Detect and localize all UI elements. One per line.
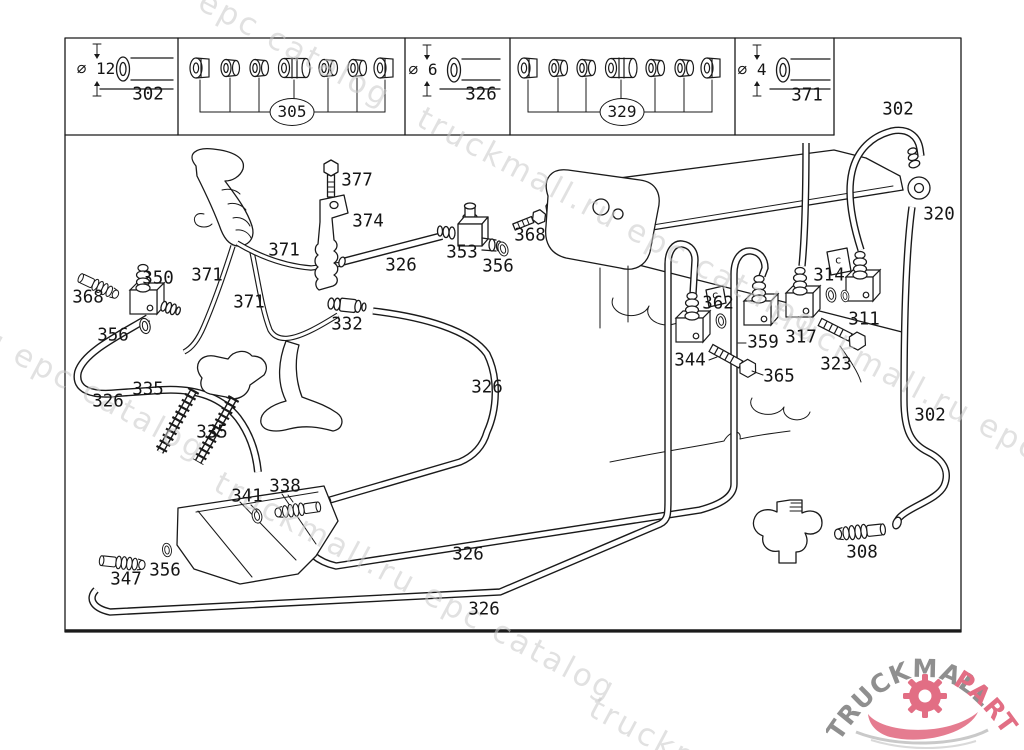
- clip-tag-c2: [827, 248, 851, 275]
- bolt-323: [816, 315, 869, 352]
- reference-row-art: [93, 44, 830, 112]
- firewall-panel: [177, 486, 338, 584]
- pedal: [261, 341, 342, 431]
- fitting-347: [99, 554, 146, 571]
- valve-body-335: [198, 351, 267, 398]
- connector-332: [327, 297, 366, 314]
- shift-boot: [192, 149, 253, 246]
- oring-356c: [162, 543, 173, 558]
- vacuum-distributor: [753, 500, 822, 563]
- fitting-308: [834, 522, 886, 541]
- truckmall-logo: TRUCKMALL PARTS: [826, 644, 1022, 750]
- bolt-368-right: [512, 208, 548, 232]
- diagram-canvas: [0, 0, 1024, 750]
- oring-362: [715, 313, 727, 329]
- clip-tag-c1: [706, 286, 726, 307]
- bolt-377: [324, 160, 338, 197]
- oring-314: [825, 287, 837, 303]
- valve-353: [438, 203, 502, 251]
- banjo-320: [904, 147, 930, 199]
- bracket-374: [315, 195, 348, 290]
- fitting-368-left: [76, 272, 120, 301]
- parts-diagram-page: truckmall.ru epc catalog truckmall.ru ep…: [0, 0, 1024, 750]
